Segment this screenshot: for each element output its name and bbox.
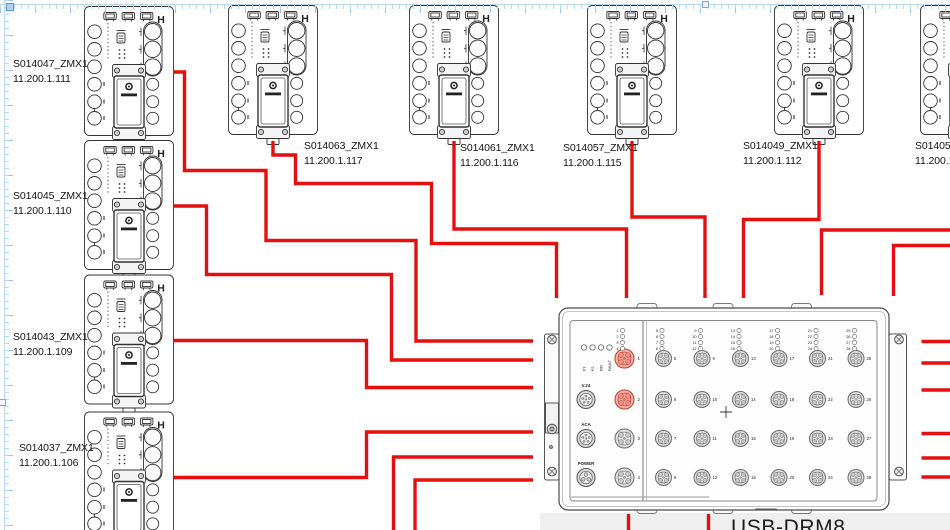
tiny-label: 19 [790, 436, 795, 441]
hub-port-18[interactable] [771, 392, 787, 408]
tiny-label: P2 [591, 367, 595, 371]
port-led-27 [852, 340, 856, 344]
tiny-label: 22 [828, 397, 833, 402]
status-led-FAULT [607, 345, 612, 350]
tiny-label: 14 [731, 335, 735, 339]
device-name: S014043_ZMX1 [13, 330, 88, 345]
device-S014043[interactable] [85, 275, 174, 414]
tiny-label: 20 [769, 347, 773, 351]
hub-port-8[interactable] [656, 470, 672, 486]
tiny-label: 26 [867, 397, 872, 402]
tiny-label: 17 [790, 356, 795, 361]
hub-port-13[interactable] [733, 351, 749, 367]
port-led-10 [698, 334, 702, 338]
aux-port-v24[interactable] [577, 391, 595, 409]
port-led-11 [698, 340, 702, 344]
device-ip: 11.200.1.112 [743, 154, 818, 169]
hub-port-12[interactable] [694, 470, 710, 486]
hub-port-22[interactable] [810, 392, 826, 408]
device-label-S014053[interactable]: S014053_ZMX111.200.1.113 [915, 139, 950, 169]
hub-port-17[interactable] [771, 351, 787, 367]
tiny-label: POWER [578, 461, 595, 466]
tiny-label: 25 [846, 329, 850, 333]
tiny-label: 11 [693, 341, 697, 345]
device-ip: 11.200.1.116 [460, 156, 535, 171]
hub-port-27[interactable] [848, 431, 864, 447]
tiny-label: 28 [846, 347, 850, 351]
port-led-5 [660, 328, 664, 332]
tiny-label: 1 [616, 329, 618, 333]
device-S014049[interactable] [775, 6, 864, 145]
hub-port-3[interactable] [615, 429, 634, 448]
tiny-label: 20 [790, 475, 795, 480]
device-S014053[interactable] [921, 6, 950, 145]
device-ip: 11.200.1.117 [304, 154, 379, 169]
tiny-label: 18 [790, 397, 795, 402]
device-label-S014057[interactable]: S014057_ZMX111.200.1.115 [563, 141, 638, 171]
selection-handle-top-left[interactable] [6, 3, 14, 11]
device-label-S014047[interactable]: S014047_ZMX111.200.1.111 [13, 57, 88, 87]
cable-S014037-to-hub-left-4[interactable] [173, 432, 533, 478]
port-led-13 [737, 328, 741, 332]
device-name: S014049_ZMX1 [743, 139, 818, 154]
port-led-7 [660, 340, 664, 344]
tiny-label: 23 [828, 436, 833, 441]
tiny-label: 5 [656, 329, 658, 333]
tiny-label: 25 [867, 356, 872, 361]
tiny-label: 27 [867, 436, 872, 441]
cable-offscreen-right-to-hub-top-5[interactable] [822, 230, 950, 295]
tiny-label: 18 [769, 335, 773, 339]
tiny-label: 3 [616, 341, 618, 345]
hub-port-10[interactable] [694, 392, 710, 408]
device-name: S014063_ZMX1 [304, 139, 379, 154]
hub-port-6[interactable] [656, 392, 672, 408]
tiny-label: 4 [616, 347, 618, 351]
port-led-20 [775, 346, 779, 350]
status-led-RM [598, 345, 603, 350]
aux-port-aca[interactable] [577, 430, 595, 448]
tiny-label: ACA [581, 422, 591, 427]
hub-port-25[interactable] [848, 351, 864, 367]
port-led-2 [620, 334, 624, 338]
tiny-label: 14 [751, 397, 756, 402]
port-led-4 [620, 346, 624, 350]
hub-port-28[interactable] [848, 470, 864, 486]
device-name: S014037_ZMX1 [19, 441, 94, 456]
tiny-label: 7 [656, 341, 658, 345]
tiny-label: V.24 [582, 383, 591, 388]
hub-port-9[interactable] [694, 351, 710, 367]
tiny-label: 28 [867, 475, 872, 480]
tiny-label: 24 [808, 347, 812, 351]
tiny-label: 2 [616, 335, 618, 339]
tiny-label: 17 [769, 329, 773, 333]
port-led-22 [814, 334, 818, 338]
hub-port-11[interactable] [694, 431, 710, 447]
tiny-label: 11 [713, 436, 718, 441]
device-ip: 11.200.1.106 [19, 456, 94, 471]
hub-port-5[interactable] [656, 351, 672, 367]
hub-port-15[interactable] [733, 431, 749, 447]
device-label-S014049[interactable]: S014049_ZMX111.200.1.112 [743, 139, 818, 169]
tiny-label: 27 [846, 341, 850, 345]
port-led-12 [698, 346, 702, 350]
device-ip: 11.200.1.110 [13, 204, 88, 219]
tiny-label: 16 [751, 475, 756, 480]
selection-handle-left[interactable] [0, 399, 6, 406]
hub-port-4[interactable] [615, 468, 634, 487]
hub-port-20[interactable] [771, 470, 787, 486]
status-led-P1 [581, 345, 586, 350]
port-led-1 [620, 328, 624, 332]
port-led-3 [620, 340, 624, 344]
tiny-label: 12 [692, 347, 696, 351]
port-led-16 [737, 346, 741, 350]
hub-port-24[interactable] [810, 470, 826, 486]
tiny-label: 15 [751, 436, 756, 441]
hub-port-19[interactable] [771, 431, 787, 447]
cable-S014057-to-hub-top-3[interactable] [632, 141, 705, 298]
tiny-label: 8 [656, 347, 658, 351]
device-ip: 11.200.1.109 [13, 345, 88, 360]
hub-port-1[interactable] [615, 349, 634, 368]
hub-port-21[interactable] [810, 351, 826, 367]
tiny-label: 26 [846, 335, 850, 339]
tiny-label: 22 [808, 335, 812, 339]
hub-port-7[interactable] [656, 431, 672, 447]
port-led-17 [775, 328, 779, 332]
port-led-21 [814, 328, 818, 332]
tiny-label: 12 [713, 475, 718, 480]
cable-offscreen-right-to-hub-top-6[interactable] [894, 246, 950, 297]
device-S014057[interactable] [588, 6, 677, 145]
tiny-label: RM [599, 365, 603, 371]
tiny-label: 10 [692, 335, 696, 339]
tiny-label: 19 [769, 341, 773, 345]
tiny-label: 15 [731, 341, 735, 345]
device-name: S014053_ZMX1 [915, 139, 950, 154]
port-led-15 [737, 340, 741, 344]
device-ip: 11.200.1.111 [13, 72, 88, 87]
port-led-18 [775, 334, 779, 338]
tiny-label: 24 [828, 475, 833, 480]
port-led-8 [660, 346, 664, 350]
port-led-23 [814, 340, 818, 344]
selection-handle-top[interactable] [702, 1, 709, 8]
hub-port-26[interactable] [848, 392, 864, 408]
tiny-label: 9 [694, 329, 696, 333]
device-S014063[interactable] [229, 6, 318, 145]
hub-port-14[interactable] [733, 392, 749, 408]
device-S014045[interactable] [85, 141, 174, 280]
diagram-canvas[interactable]: H [0, 0, 950, 530]
cable-offscreen-bottom-to-hub-left-6[interactable] [415, 480, 533, 530]
device-S014061[interactable] [410, 6, 499, 145]
device-name: S014047_ZMX1 [13, 57, 88, 72]
hub-port-23[interactable] [810, 431, 826, 447]
tiny-label: 10 [713, 397, 718, 402]
device-label-S014063[interactable]: S014063_ZMX111.200.1.117 [304, 139, 379, 169]
port-led-24 [814, 346, 818, 350]
port-led-28 [852, 346, 856, 350]
device-ip: 11.200.1.115 [563, 156, 638, 171]
port-led-19 [775, 340, 779, 344]
device-S014037[interactable] [85, 412, 174, 530]
device-name: S014061_ZMX1 [460, 141, 535, 156]
tiny-label: 16 [731, 347, 735, 351]
tiny-label: 13 [751, 356, 756, 361]
tiny-label: 23 [808, 341, 812, 345]
hub-port-16[interactable] [733, 470, 749, 486]
tiny-label: 21 [828, 356, 833, 361]
tiny-label: 13 [731, 329, 735, 333]
aux-port-power[interactable] [577, 469, 595, 487]
device-name: S014045_ZMX1 [13, 189, 88, 204]
tiny-label: FAULT [608, 359, 612, 371]
cable-S014043-to-hub-left-3[interactable] [173, 341, 533, 388]
port-led-9 [698, 328, 702, 332]
device-label-S014037[interactable]: S014037_ZMX111.200.1.106 [19, 441, 94, 471]
device-label-S014061[interactable]: S014061_ZMX111.200.1.116 [460, 141, 535, 171]
port-led-25 [852, 328, 856, 332]
port-led-6 [660, 334, 664, 338]
port-led-14 [737, 334, 741, 338]
device-label-S014045[interactable]: S014045_ZMX111.200.1.110 [13, 189, 88, 219]
status-led-P2 [590, 345, 595, 350]
hub-label[interactable]: USB-DRM8 [731, 516, 845, 530]
device-label-S014043[interactable]: S014043_ZMX111.200.1.109 [13, 330, 88, 360]
tiny-label: 6 [656, 335, 658, 339]
device-S014047[interactable] [85, 7, 174, 146]
tiny-label: P1 [582, 367, 586, 371]
hub-port-2[interactable] [615, 390, 634, 409]
diagram-scene: H [0, 0, 950, 530]
device-name: S014057_ZMX1 [563, 141, 638, 156]
device-ip: 11.200.1.113 [915, 154, 950, 169]
tiny-label: 21 [808, 329, 812, 333]
hub-device[interactable]: P1P2RMFAULTV.24ACAPOWER11223344556677889… [545, 304, 907, 514]
port-led-26 [852, 334, 856, 338]
